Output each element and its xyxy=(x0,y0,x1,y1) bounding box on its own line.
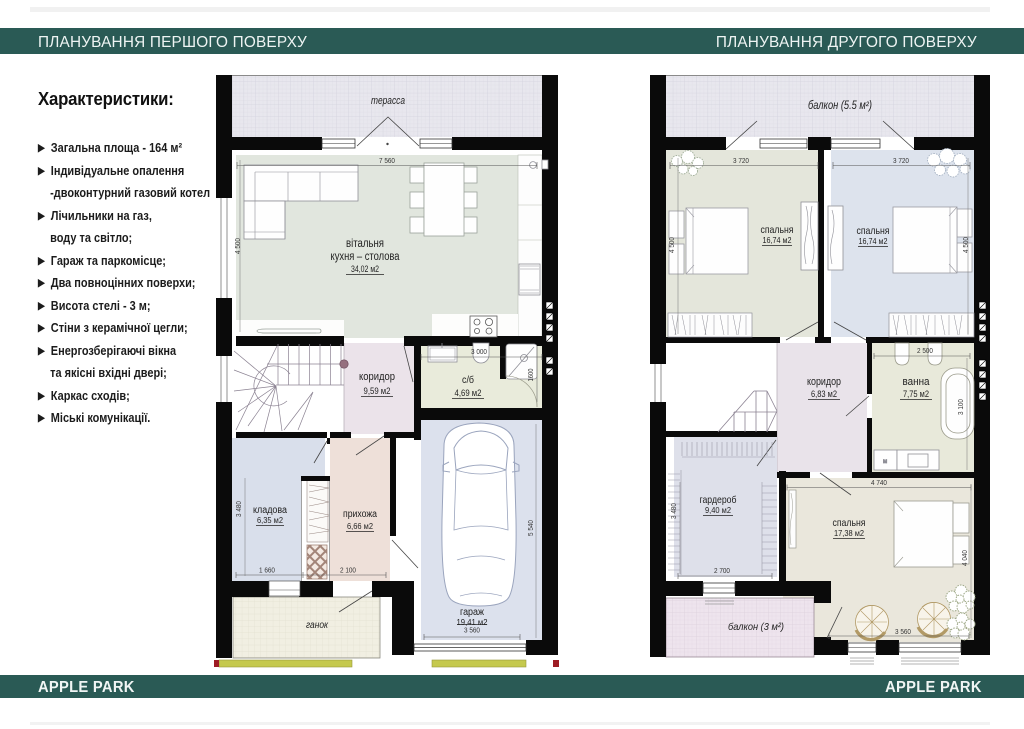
svg-text:с/б: с/б xyxy=(462,374,474,386)
svg-text:3 000: 3 000 xyxy=(471,347,487,356)
svg-text:16,74 м2: 16,74 м2 xyxy=(859,236,888,246)
svg-text:4 040: 4 040 xyxy=(960,550,969,566)
svg-text:7,75 м2: 7,75 м2 xyxy=(903,389,929,399)
svg-text:прихожа: прихожа xyxy=(343,509,377,520)
svg-text:2 500: 2 500 xyxy=(917,346,933,355)
svg-text:9,59 м2: 9,59 м2 xyxy=(364,386,391,396)
svg-text:коридор: коридор xyxy=(359,371,395,383)
svg-text:16,74 м2: 16,74 м2 xyxy=(763,235,792,245)
svg-text:6,35 м2: 6,35 м2 xyxy=(257,515,283,525)
svg-text:4 500: 4 500 xyxy=(961,237,970,253)
svg-text:коридор: коридор xyxy=(807,376,841,388)
svg-text:3 720: 3 720 xyxy=(893,156,909,165)
svg-text:ганок: ганок xyxy=(306,620,329,631)
svg-text:5 540: 5 540 xyxy=(526,520,535,536)
svg-text:4 740: 4 740 xyxy=(871,478,887,487)
svg-text:2 100: 2 100 xyxy=(340,566,356,575)
svg-text:6,83 м2: 6,83 м2 xyxy=(811,389,837,399)
svg-text:34,02 м2: 34,02 м2 xyxy=(351,264,379,274)
svg-text:9,40 м2: 9,40 м2 xyxy=(705,505,731,515)
svg-text:3 480: 3 480 xyxy=(234,501,243,517)
svg-text:1 660: 1 660 xyxy=(259,566,275,575)
svg-text:балкон (5.5 м²): балкон (5.5 м²) xyxy=(808,100,872,112)
svg-text:м: м xyxy=(883,459,887,465)
svg-text:6,66 м2: 6,66 м2 xyxy=(347,521,373,531)
svg-text:терасса: терасса xyxy=(371,95,405,107)
svg-text:4 500: 4 500 xyxy=(233,238,242,254)
svg-text:3 720: 3 720 xyxy=(733,156,749,165)
svg-text:2 700: 2 700 xyxy=(714,566,730,575)
svg-text:7 560: 7 560 xyxy=(379,156,395,165)
svg-text:4,69 м2: 4,69 м2 xyxy=(455,388,482,398)
svg-text:4 500: 4 500 xyxy=(667,237,676,253)
svg-text:балкон (3 м²): балкон (3 м²) xyxy=(728,621,784,633)
svg-text:17,38 м2: 17,38 м2 xyxy=(834,528,864,538)
svg-text:вітальня: вітальня xyxy=(346,238,384,250)
svg-text:3 480: 3 480 xyxy=(669,503,678,519)
svg-text:кухня – столова: кухня – столова xyxy=(331,251,400,263)
svg-text:19,41 м2: 19,41 м2 xyxy=(457,617,488,627)
svg-text:3 560: 3 560 xyxy=(895,627,911,636)
svg-text:3 100: 3 100 xyxy=(956,399,965,415)
svg-text:ванна: ванна xyxy=(903,376,931,388)
svg-text:1600: 1600 xyxy=(526,369,535,382)
